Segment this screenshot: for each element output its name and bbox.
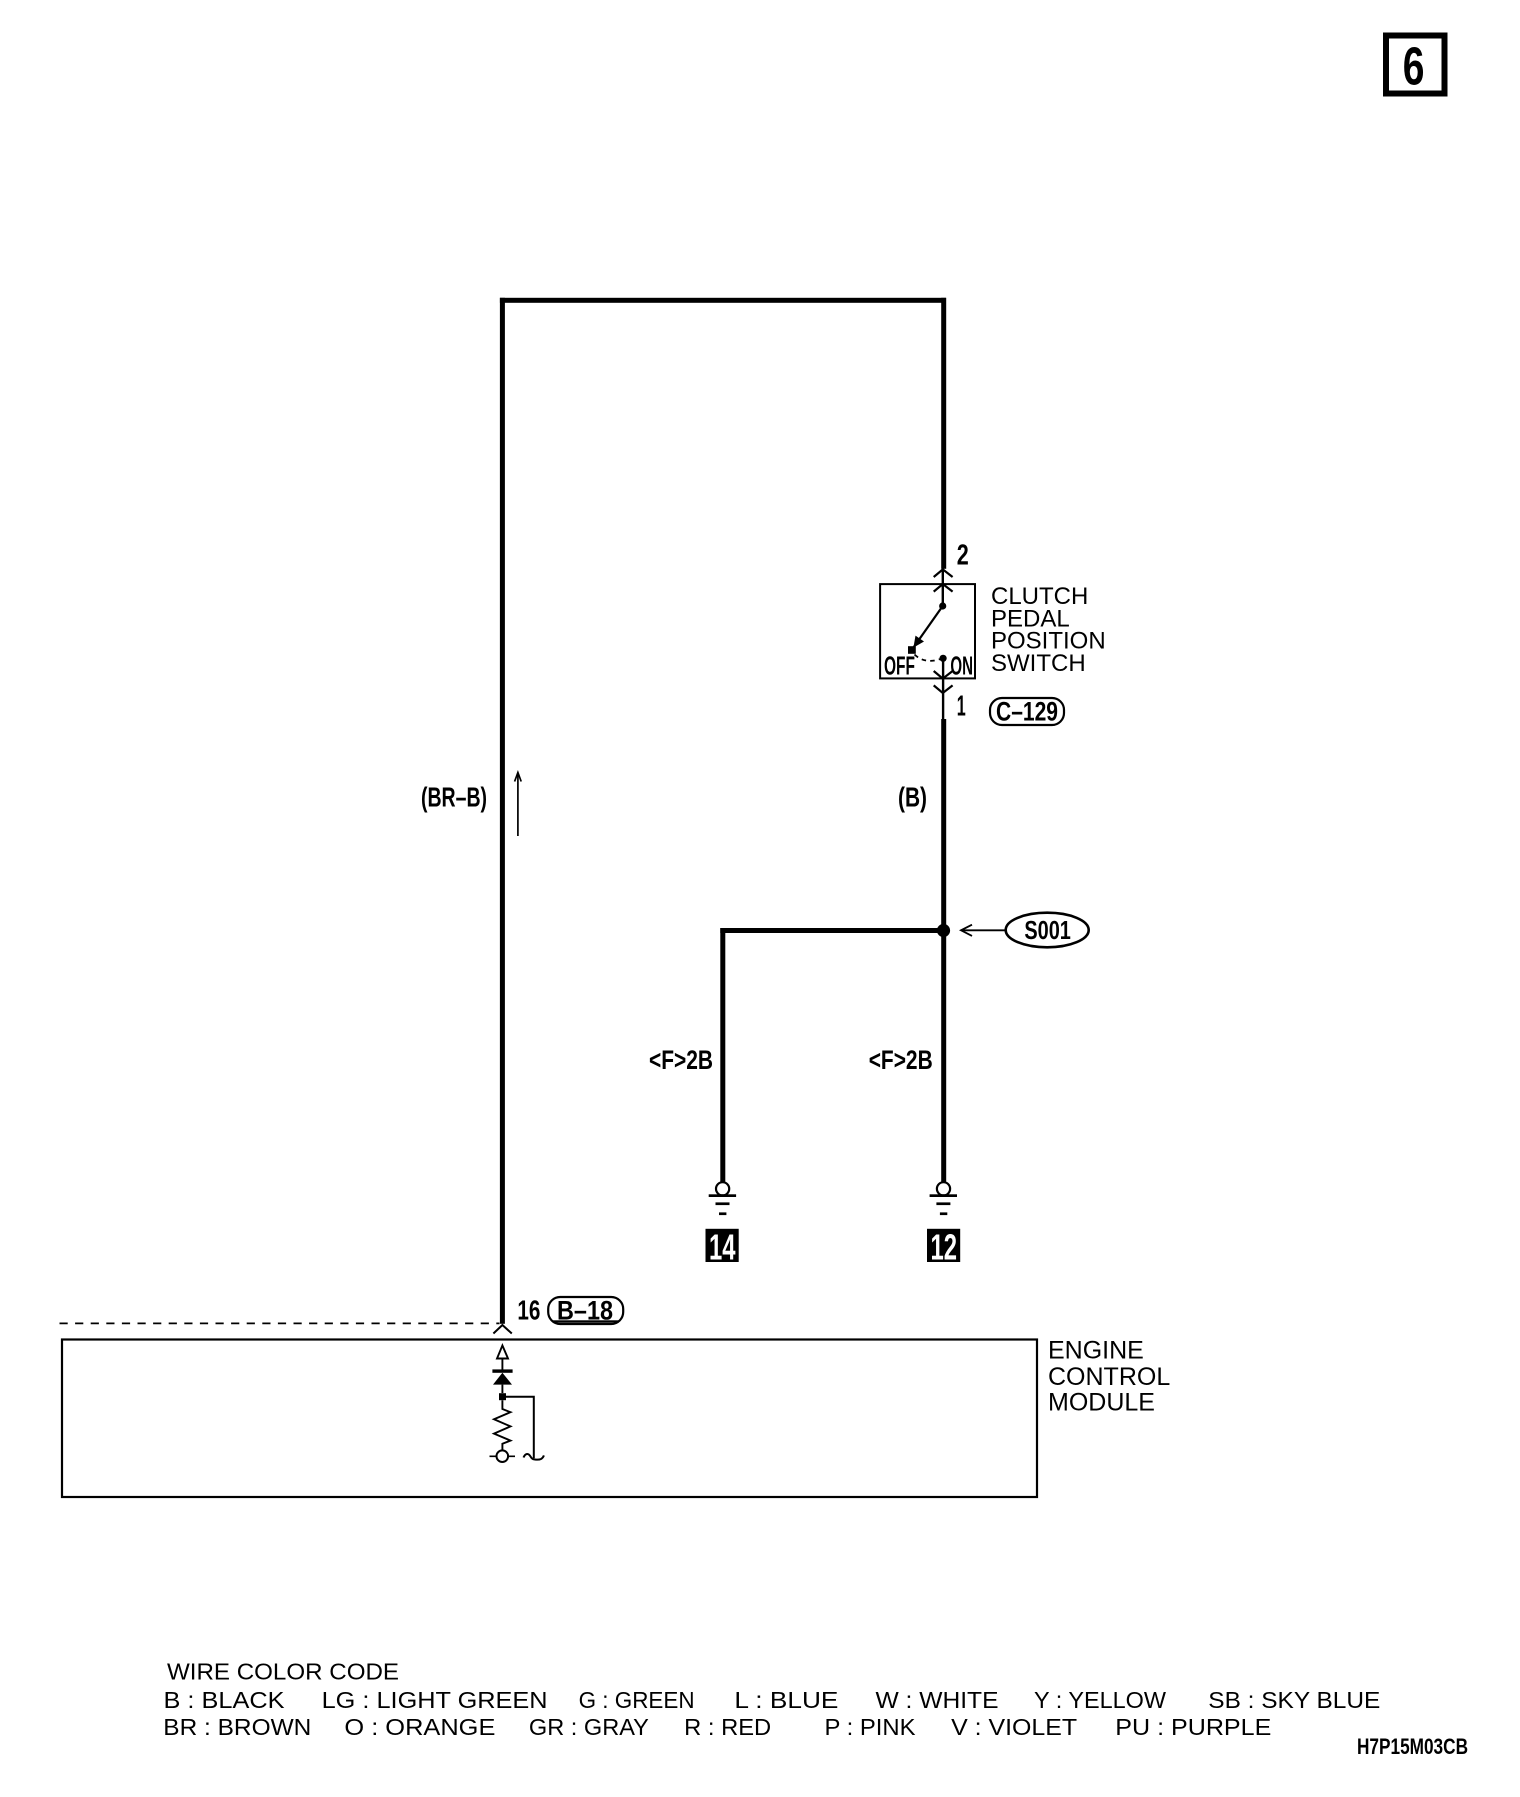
svg-text:V : VIOLET: V : VIOLET (951, 1714, 1077, 1740)
svg-text:Y : YELLOW: Y : YELLOW (1034, 1687, 1166, 1713)
svg-text:6: 6 (1403, 37, 1425, 97)
svg-text:CONTROL: CONTROL (1048, 1363, 1170, 1391)
svg-text:L : BLUE: L : BLUE (734, 1687, 838, 1713)
svg-text:R : RED: R : RED (684, 1714, 771, 1740)
svg-text:1: 1 (957, 691, 966, 723)
svg-text:<F>2B: <F>2B (649, 1045, 713, 1075)
svg-text:W : WHITE: W : WHITE (876, 1687, 999, 1713)
svg-text:OFF: OFF (884, 651, 915, 681)
svg-text:14: 14 (709, 1227, 736, 1268)
svg-text:ON: ON (950, 651, 973, 681)
svg-text:(BR–B): (BR–B) (421, 782, 487, 813)
svg-text:S001: S001 (1024, 915, 1071, 945)
svg-text:<F>2B: <F>2B (869, 1045, 933, 1075)
svg-text:O : ORANGE: O : ORANGE (344, 1714, 495, 1740)
svg-text:B : BLACK: B : BLACK (164, 1687, 286, 1713)
svg-text:MODULE: MODULE (1048, 1389, 1155, 1417)
svg-text:2: 2 (957, 540, 969, 572)
svg-text:G : GREEN: G : GREEN (579, 1687, 695, 1713)
svg-text:(B): (B) (898, 782, 927, 813)
svg-text:GR : GRAY: GR : GRAY (529, 1714, 649, 1740)
svg-text:LG : LIGHT GREEN: LG : LIGHT GREEN (322, 1687, 548, 1713)
svg-text:P : PINK: P : PINK (825, 1714, 917, 1740)
svg-text:12: 12 (931, 1227, 958, 1268)
svg-text:SB : SKY BLUE: SB : SKY BLUE (1208, 1687, 1380, 1713)
svg-text:H7P15M03CB: H7P15M03CB (1357, 1734, 1468, 1759)
svg-text:BR : BROWN: BR : BROWN (163, 1714, 311, 1740)
svg-text:16: 16 (517, 1295, 540, 1326)
svg-text:ENGINE: ENGINE (1048, 1337, 1144, 1365)
svg-text:PU : PURPLE: PU : PURPLE (1115, 1714, 1271, 1740)
svg-text:SWITCH: SWITCH (991, 650, 1086, 677)
svg-text:WIRE COLOR CODE: WIRE COLOR CODE (167, 1658, 399, 1684)
svg-text:C–129: C–129 (996, 697, 1058, 727)
